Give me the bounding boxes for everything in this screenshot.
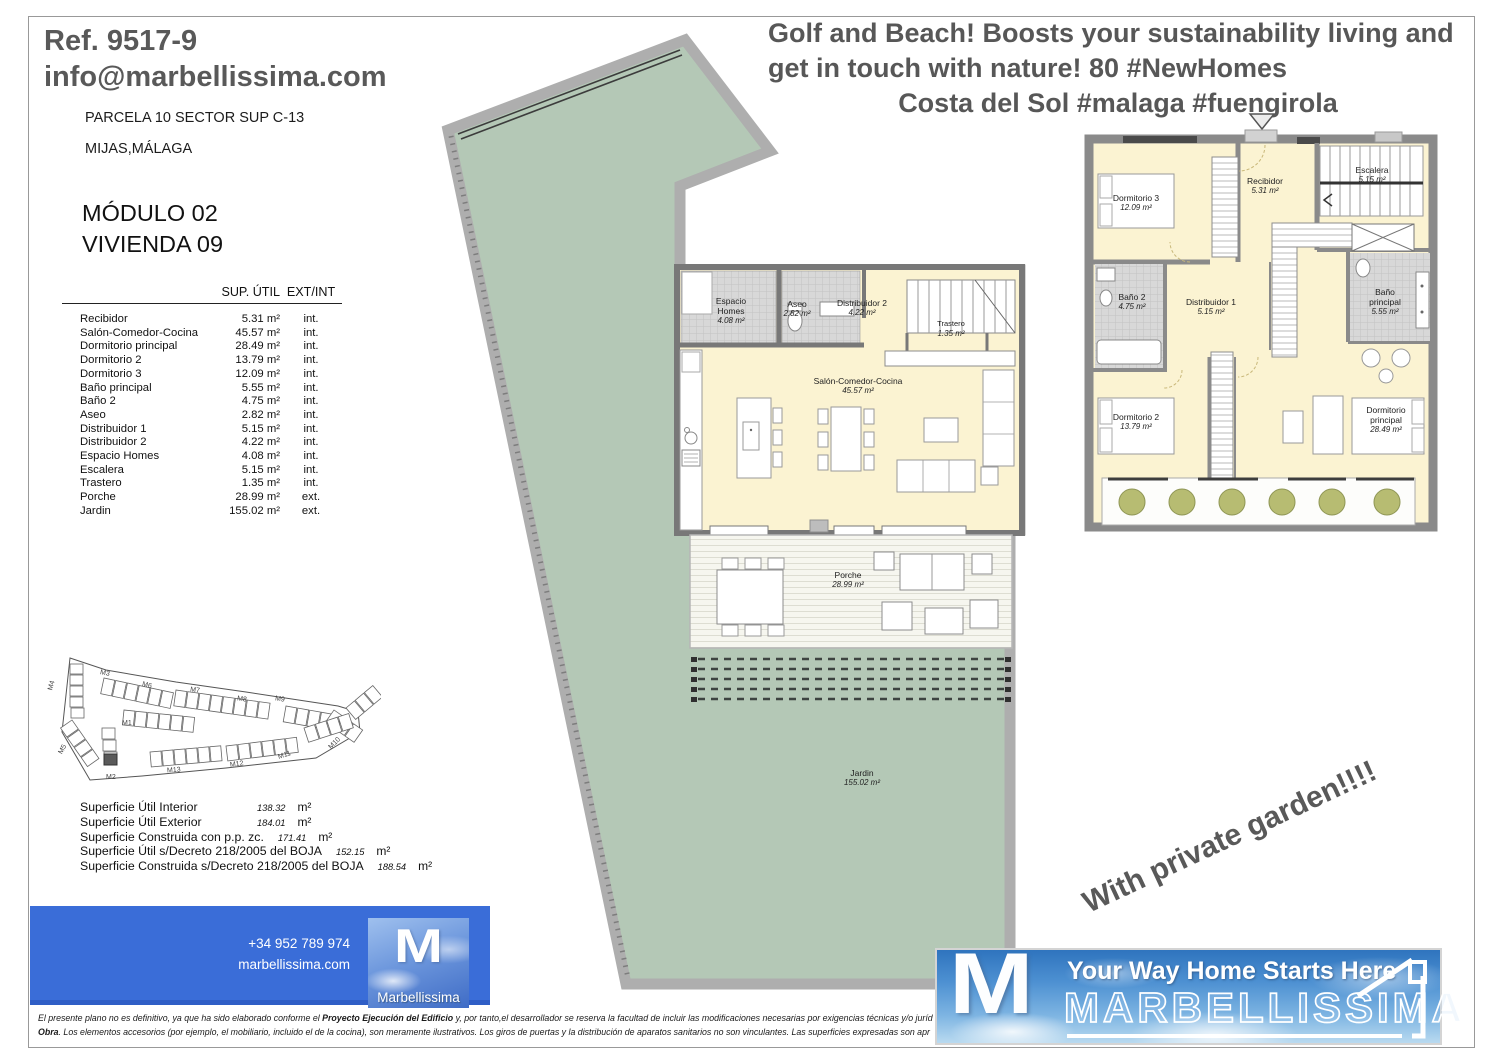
room-label-area: 28.49 m² (1355, 425, 1417, 434)
room-label-escalera: Escalera 5.15 m² (1342, 165, 1402, 184)
terrace (1102, 478, 1415, 525)
banner-tagline: Your Way Home Starts Here (1067, 957, 1396, 986)
banner-m-icon: M (949, 935, 1034, 1034)
module-label: M8 (237, 695, 248, 703)
room-label-name: Salón-Comedor-Cocina (814, 376, 903, 386)
banner-underline (1067, 1034, 1402, 1038)
room-type: int. (280, 313, 342, 327)
table-row: Porche28.99 m²ext. (62, 491, 342, 505)
column-ext-int: EXT/INT (280, 285, 342, 299)
room-label-name: Espacio Homes (716, 296, 746, 316)
room-label-name: Trastero (937, 319, 965, 328)
room-label-name: Aseo (787, 299, 806, 309)
room-label-name: Baño 2 (1119, 292, 1146, 302)
room-label-area: 155.02 m² (822, 778, 902, 787)
room-name: Baño 2 (62, 395, 208, 409)
room-name: Distribuidor 1 (62, 423, 208, 437)
room-type: int. (280, 409, 342, 423)
room-area: 5.15 m² (208, 423, 280, 437)
room-type: int. (280, 327, 342, 341)
room-area: 2.82 m² (208, 409, 280, 423)
total-row: Superficie Construida con p.p. zc.171.41… (80, 830, 432, 845)
unit-block: MÓDULO 02 VIVIENDA 09 (82, 198, 223, 259)
room-label-porche: Porche 28.99 m² (808, 570, 888, 589)
table-row: Aseo2.82 m²int. (62, 409, 342, 423)
porch-deck (690, 535, 1012, 648)
areas-table: SUP. ÚTIL EXT/INT Recibidor5.31 m²int. S… (62, 285, 342, 519)
brand-banner: M Your Way Home Starts Here MARBELLISSIM… (935, 948, 1442, 1045)
room-label-area: 45.57 m² (788, 386, 928, 395)
logo-m-icon: M (355, 918, 481, 973)
room-type: int. (280, 368, 342, 382)
modulo-label: MÓDULO 02 (82, 198, 223, 229)
room-label-area: 1.35 m² (921, 329, 981, 338)
room-label-area: 5.55 m² (1359, 307, 1411, 316)
ground-floor-plan (430, 18, 1030, 998)
header-block: Ref. 9517-9 info@marbellissima.com (44, 24, 387, 96)
room-area: 4.75 m² (208, 395, 280, 409)
room-area: 4.22 m² (208, 436, 280, 450)
module-label: M13 (167, 767, 181, 775)
areas-table-header: SUP. ÚTIL EXT/INT (62, 285, 342, 304)
table-row: Baño principal5.55 m²int. (62, 382, 342, 396)
reference-number: Ref. 9517-9 (44, 24, 387, 60)
room-label-distribuidor-1: Distribuidor 1 5.15 m² (1171, 297, 1251, 316)
room-label-area: 4.75 m² (1107, 302, 1157, 311)
room-label-bano-2: Baño 2 4.75 m² (1107, 292, 1157, 311)
room-label-name: Dormitorio principal (1366, 405, 1405, 425)
room-label-espacio-homes: Espacio Homes 4.08 m² (708, 296, 754, 325)
room-label-area: 28.99 m² (808, 580, 888, 589)
room-label-area: 4.08 m² (708, 316, 754, 325)
room-label-area: 13.79 m² (1096, 422, 1176, 431)
room-label-area: 5.31 m² (1235, 186, 1295, 195)
phone-number: +34 952 789 974 (160, 934, 350, 955)
room-type: ext. (280, 491, 342, 505)
areas-header-spacer (62, 285, 208, 299)
module-label: M1 (122, 720, 132, 727)
table-row: Dormitorio 213.79 m²int. (62, 354, 342, 368)
room-type: int. (280, 477, 342, 491)
table-row: Trastero1.35 m²int. (62, 477, 342, 491)
room-label-jardin: Jardin 155.02 m² (822, 768, 902, 787)
room-area: 5.15 m² (208, 464, 280, 478)
column-sup-util: SUP. ÚTIL (208, 285, 280, 299)
room-label-name: Jardin (850, 768, 873, 778)
room-name: Salón-Comedor-Cocina (62, 327, 208, 341)
total-row: Superficie Útil Exterior184.01m² (80, 815, 432, 830)
total-unit: m² (297, 800, 311, 814)
table-row: Dormitorio 312.09 m²int. (62, 368, 342, 382)
room-type: int. (280, 423, 342, 437)
room-area: 4.08 m² (208, 450, 280, 464)
disclaimer-bold: Obra (38, 1027, 59, 1037)
total-row: Superficie Útil s/Decreto 218/2005 del B… (80, 844, 432, 859)
total-value: 138.32 (257, 803, 285, 813)
room-label-area: 12.09 m² (1091, 203, 1181, 212)
room-label-recibidor: Recibidor 5.31 m² (1235, 176, 1295, 195)
total-label: Superficie Útil Interior (80, 800, 243, 814)
room-area: 13.79 m² (208, 354, 280, 368)
room-label-bano-principal: Baño principal 5.55 m² (1359, 287, 1411, 316)
room-label-name: Porche (835, 570, 862, 580)
total-unit: m² (376, 844, 390, 858)
total-row: Superficie Construida s/Decreto 218/2005… (80, 859, 432, 874)
total-label: Superficie Construida s/Decreto 218/2005… (80, 859, 364, 873)
room-label-name: Distribuidor 1 (1186, 297, 1236, 307)
room-label-name: Recibidor (1247, 176, 1283, 186)
room-area: 45.57 m² (208, 327, 280, 341)
room-area: 1.35 m² (208, 477, 280, 491)
table-row: Distribuidor 15.15 m²int. (62, 423, 342, 437)
room-name: Dormitorio principal (62, 340, 208, 354)
room-type: int. (280, 436, 342, 450)
room-name: Distribuidor 2 (62, 436, 208, 450)
total-value: 171.41 (278, 833, 306, 843)
room-area: 5.31 m² (208, 313, 280, 327)
highlighted-unit (104, 754, 117, 765)
room-name: Dormitorio 2 (62, 354, 208, 368)
room-label-distribuidor-2: Distribuidor 2 4.22 m² (822, 298, 902, 317)
totals-block: Superficie Útil Interior138.32m² Superfi… (80, 800, 432, 874)
total-row: Superficie Útil Interior138.32m² (80, 800, 432, 815)
module-label: M9 (275, 695, 286, 703)
table-row: Distribuidor 24.22 m²int. (62, 436, 342, 450)
contact-email: info@marbellissima.com (44, 60, 387, 96)
table-row: Recibidor5.31 m²int. (62, 313, 342, 327)
room-type: int. (280, 382, 342, 396)
total-value: 152.15 (336, 847, 364, 857)
room-label-dormitorio-2: Dormitorio 2 13.79 m² (1096, 412, 1176, 431)
room-area: 28.49 m² (208, 340, 280, 354)
house-outline-icon (1356, 952, 1436, 1045)
room-name: Jardin (62, 505, 208, 519)
site-houses (61, 664, 381, 767)
marbellissima-logo: M Marbellissima (368, 918, 469, 1008)
room-label-dormitorio-3: Dormitorio 3 12.09 m² (1091, 193, 1181, 212)
room-area: 12.09 m² (208, 368, 280, 382)
room-label-aseo: Aseo 2.82 m² (767, 299, 827, 318)
room-name: Porche (62, 491, 208, 505)
total-value: 188.54 (378, 862, 406, 872)
disclaimer-segment: . Los elementos accesorios (por ejemplo,… (59, 1027, 930, 1037)
room-label-salon: Salón-Comedor-Cocina 45.57 m² (788, 376, 928, 395)
areas-table-rows: Recibidor5.31 m²int. Salón-Comedor-Cocin… (62, 313, 342, 519)
disclaimer-bold: Proyecto Ejecución del Edificio (322, 1013, 453, 1023)
room-name: Aseo (62, 409, 208, 423)
room-area: 5.55 m² (208, 382, 280, 396)
room-label-dormitorio-principal: Dormitorio principal 28.49 m² (1355, 405, 1417, 434)
bathroom-2 (1095, 264, 1163, 368)
module-label: M7 (190, 686, 201, 694)
logo-name: Marbellissima (368, 990, 469, 1005)
table-row: Salón-Comedor-Cocina45.57 m²int. (62, 327, 342, 341)
room-name: Recibidor (62, 313, 208, 327)
table-row: Jardin155.02 m²ext. (62, 505, 342, 519)
room-type: int. (280, 340, 342, 354)
room-label-name: Dormitorio 3 (1113, 193, 1159, 203)
room-type: int. (280, 450, 342, 464)
room-name: Baño principal (62, 382, 208, 396)
website-url: marbellissima.com (160, 955, 350, 976)
room-label-name: Escalera (1355, 165, 1388, 175)
contact-block: +34 952 789 974 marbellissima.com (160, 934, 350, 976)
entry-arrow-icon (1250, 114, 1274, 129)
room-area: 155.02 m² (208, 505, 280, 519)
city-line: MIJAS,MÁLAGA (85, 141, 192, 157)
table-row: Baño 24.75 m²int. (62, 395, 342, 409)
module-label: M2 (106, 774, 116, 781)
total-label: Superficie Útil s/Decreto 218/2005 del B… (80, 844, 322, 858)
room-label-area: 2.82 m² (767, 309, 827, 318)
room-label-area: 4.22 m² (822, 308, 902, 317)
room-name: Espacio Homes (62, 450, 208, 464)
total-unit: m² (318, 830, 332, 844)
room-label-area: 5.15 m² (1342, 175, 1402, 184)
room-label-name: Dormitorio 2 (1113, 412, 1159, 422)
table-row: Dormitorio principal28.49 m²int. (62, 340, 342, 354)
parcela-line: PARCELA 10 SECTOR SUP C-13 (85, 110, 304, 126)
room-type: int. (280, 464, 342, 478)
room-label-trastero: Trastero 1.35 m² (921, 320, 981, 338)
site-plan (46, 652, 381, 792)
total-value: 184.01 (257, 818, 285, 828)
room-label-name: Baño principal (1369, 287, 1401, 307)
table-row: Espacio Homes4.08 m²int. (62, 450, 342, 464)
vivienda-label: VIVIENDA 09 (82, 229, 223, 260)
table-row: Escalera5.15 m²int. (62, 464, 342, 478)
room-type: ext. (280, 505, 342, 519)
room-type: int. (280, 354, 342, 368)
total-label: Superficie Útil Exterior (80, 815, 243, 829)
room-type: int. (280, 395, 342, 409)
disclaimer-segment: y, por tanto,el desarrollador se reserva… (453, 1013, 933, 1023)
room-name: Dormitorio 3 (62, 368, 208, 382)
disclaimer-segment: El presente plano no es definitivo, ya q… (38, 1013, 322, 1023)
total-unit: m² (418, 859, 432, 873)
room-name: Escalera (62, 464, 208, 478)
room-area: 28.99 m² (208, 491, 280, 505)
total-unit: m² (297, 815, 311, 829)
room-label-name: Distribuidor 2 (837, 298, 887, 308)
total-label: Superficie Construida con p.p. zc. (80, 830, 264, 844)
room-label-area: 5.15 m² (1171, 307, 1251, 316)
room-name: Trastero (62, 477, 208, 491)
